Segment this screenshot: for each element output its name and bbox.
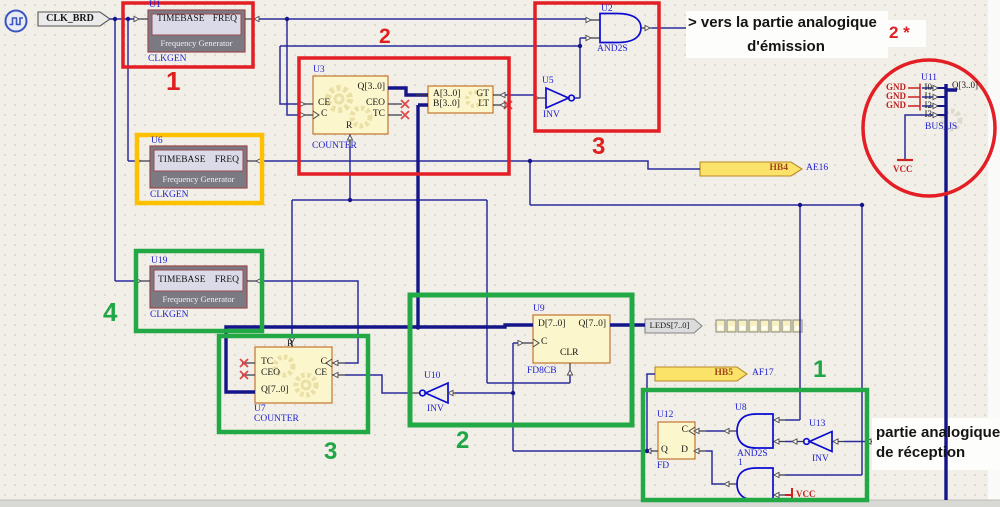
hb4-port-label: HB4 bbox=[704, 164, 788, 174]
u13-inv-gate bbox=[810, 432, 833, 452]
u2-ref: U2 bbox=[601, 5, 613, 15]
u6-lib: CLKGEN bbox=[150, 191, 189, 201]
gate1-ref: 1 bbox=[738, 459, 743, 469]
hb5-port-label: HB5 bbox=[659, 369, 733, 379]
marker-red-1: 1 bbox=[166, 68, 180, 94]
schematic-canvas: CLK_BRD LEDS[7..0] HB4 AE16 HB5 AF17 GND… bbox=[0, 0, 1000, 507]
u7-pin-tc: TC bbox=[261, 358, 273, 368]
annotation-shapes bbox=[123, 3, 995, 500]
clock-waveform-icon[interactable] bbox=[6, 11, 27, 32]
u3-pin-c: C bbox=[321, 110, 327, 120]
emission-note-line1: > vers la partie analogique bbox=[688, 13, 877, 33]
clk-brd-port-label: CLK_BRD bbox=[40, 14, 100, 24]
u5-lib: INV bbox=[543, 111, 560, 121]
marker-green-1: 1 bbox=[813, 358, 826, 382]
window-edges bbox=[0, 0, 1000, 507]
u1-title: Frequency Generator bbox=[151, 39, 242, 48]
u7-pin-r: R bbox=[287, 340, 293, 350]
u12-lib: FD bbox=[657, 462, 669, 472]
u11-pin-i3: I3 bbox=[918, 110, 932, 119]
u12-pin-c: C bbox=[670, 426, 688, 436]
vcc-label-gate: VCC bbox=[796, 490, 816, 499]
u10-ref: U10 bbox=[424, 372, 440, 382]
vcc-label-bus: VCC bbox=[893, 165, 913, 174]
u11-pin-q: Q[3..0] bbox=[952, 81, 978, 90]
u3-pin-r: R bbox=[346, 122, 352, 132]
u7-pin-ceo: CEO bbox=[261, 369, 280, 379]
u10-inv-bubble bbox=[420, 390, 426, 396]
u5-inv-gate bbox=[546, 88, 569, 108]
u3-ref: U3 bbox=[313, 66, 325, 76]
u6-title: Frequency Generator bbox=[152, 175, 245, 184]
u19-pin-freq: FREQ bbox=[195, 276, 239, 286]
u10-lib: INV bbox=[427, 405, 444, 415]
clock-pin-wedges bbox=[313, 111, 695, 435]
gnd-label-3: GND bbox=[880, 101, 906, 110]
reception-note-line2: de réception bbox=[876, 443, 965, 463]
marker-green-4: 4 bbox=[103, 299, 117, 325]
u3-lib: COUNTER bbox=[312, 142, 357, 152]
u11-lib: BUS_JS bbox=[925, 123, 957, 133]
led-indicators bbox=[716, 320, 802, 332]
marker-green-3: 3 bbox=[324, 440, 337, 464]
u13-lib: INV bbox=[812, 455, 829, 465]
u1-lib: CLKGEN bbox=[148, 55, 187, 65]
gate1-and-gate bbox=[737, 468, 773, 500]
u5-inv-bubble bbox=[569, 95, 575, 101]
u6-ref: U6 bbox=[151, 137, 163, 147]
u2-and-gate bbox=[600, 14, 641, 43]
hb5-pin-label: AF17 bbox=[752, 369, 774, 379]
u9-pin-q: Q[7..0] bbox=[559, 320, 606, 330]
cmp-pin-lt: LT bbox=[449, 100, 489, 110]
u1-pin-freq: FREQ bbox=[195, 15, 237, 25]
emission-note-line2: d'émission bbox=[688, 37, 884, 57]
u9-pin-clr: CLR bbox=[560, 349, 578, 359]
u12-pin-d: D bbox=[670, 446, 688, 456]
u7-lib: COUNTER bbox=[254, 415, 299, 425]
u13-inv-bubble bbox=[804, 439, 810, 445]
hb4-pin-label: AE16 bbox=[806, 164, 828, 174]
u19-title: Frequency Generator bbox=[152, 295, 245, 304]
u7-pin-ce: CE bbox=[299, 369, 327, 379]
u7-pin-c: C bbox=[299, 358, 327, 368]
u10-inv-gate bbox=[426, 383, 449, 403]
u5-ref: U5 bbox=[542, 77, 554, 87]
u7-pin-q: Q[7..0] bbox=[261, 386, 288, 396]
u12-pin-q: Q bbox=[661, 446, 668, 456]
u3-pin-ceo: CEO bbox=[329, 99, 385, 109]
marker-red-2star: 2 * bbox=[889, 24, 910, 41]
u6-pin-freq: FREQ bbox=[195, 156, 239, 166]
u12-ref: U12 bbox=[657, 411, 673, 421]
marker-red-3: 3 bbox=[592, 135, 605, 159]
u8-and-gate bbox=[737, 414, 773, 448]
u3-pin-tc: TC bbox=[329, 110, 385, 120]
leds-port-label: LEDS[7..0] bbox=[646, 321, 693, 330]
marker-red-2: 2 bbox=[379, 26, 391, 47]
marker-green-2: 2 bbox=[456, 429, 469, 453]
u9-lib: FD8CB bbox=[527, 367, 557, 377]
u19-ref: U19 bbox=[151, 257, 167, 267]
u9-ref: U9 bbox=[533, 305, 545, 315]
u3-pin-q: Q[3..0] bbox=[329, 83, 385, 93]
u9-pin-c: C bbox=[541, 338, 547, 348]
u19-lib: CLKGEN bbox=[150, 311, 189, 321]
u1-ref: U1 bbox=[149, 1, 161, 11]
u2-lib: AND2S bbox=[597, 45, 628, 55]
u8-ref: U8 bbox=[735, 404, 747, 414]
u13-ref: U13 bbox=[809, 420, 825, 430]
reception-note-line1: partie analogique bbox=[876, 423, 1000, 443]
